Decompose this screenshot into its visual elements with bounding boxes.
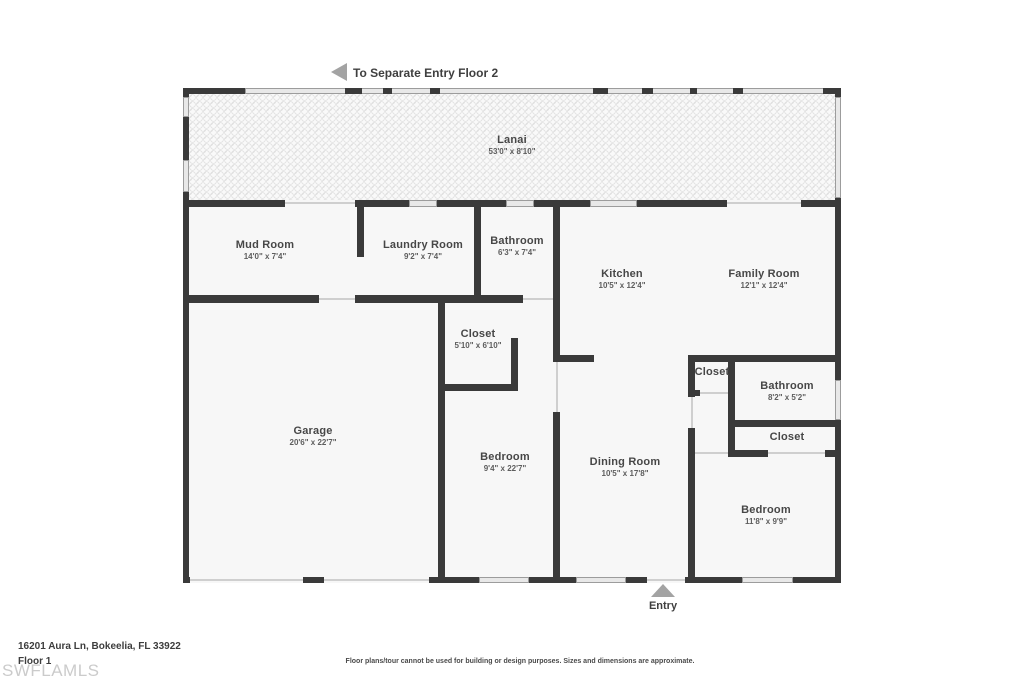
room-name: Lanai <box>489 134 536 147</box>
room-name: Dining Room <box>590 456 661 469</box>
room-label-bedroom-1: Bedroom 9'4" x 22'7" <box>480 451 530 474</box>
wall <box>688 428 695 583</box>
window <box>409 200 437 207</box>
wall <box>825 450 841 457</box>
room-name: Kitchen <box>599 268 646 281</box>
wall <box>688 390 700 396</box>
room-name: Laundry Room <box>383 239 463 252</box>
room-dims: 10'5" x 17'8" <box>590 469 661 479</box>
door-opening <box>727 202 801 204</box>
wall <box>534 200 590 207</box>
room-name: Bathroom <box>490 235 544 248</box>
room-dims: 10'5" x 12'4" <box>599 281 646 291</box>
wall <box>438 295 445 583</box>
room-dims: 9'2" x 7'4" <box>383 252 463 262</box>
wall <box>688 355 841 362</box>
room-label-bedroom-2: Bedroom 11'8" x 9'9" <box>741 504 791 527</box>
room-name: Closet <box>695 366 730 379</box>
window <box>835 380 841 420</box>
wall <box>690 88 697 94</box>
disclaimer-text: Floor plans/tour cannot be used for buil… <box>346 658 695 665</box>
wall <box>529 577 576 583</box>
wall <box>303 577 324 583</box>
door-opening <box>700 392 728 394</box>
room-name: Bedroom <box>480 451 530 464</box>
room-label-bathroom-2: Bathroom 8'2" x 5'2" <box>760 380 814 403</box>
window <box>183 160 189 192</box>
room-name: Closet <box>770 431 805 444</box>
wall <box>183 88 245 94</box>
room-label-bathroom-1: Bathroom 6'3" x 7'4" <box>490 235 544 258</box>
wall <box>438 384 518 391</box>
garage-door-opening <box>324 579 429 581</box>
room-label-closet-3: Closet <box>770 431 805 444</box>
wall <box>383 88 392 94</box>
room-name: Mud Room <box>236 239 294 252</box>
room-dims: 14'0" x 7'4" <box>236 252 294 262</box>
room-name: Family Room <box>728 268 799 281</box>
room-label-laundry-room: Laundry Room 9'2" x 7'4" <box>383 239 463 262</box>
window <box>183 97 189 117</box>
room-label-lanai: Lanai 53'0" x 8'10" <box>489 134 536 157</box>
wall <box>593 88 608 94</box>
window <box>506 200 534 207</box>
wall <box>183 577 190 583</box>
room-label-mud-room: Mud Room 14'0" x 7'4" <box>236 239 294 262</box>
room-name: Bathroom <box>760 380 814 393</box>
door-opening <box>691 397 693 428</box>
door-opening <box>556 361 558 412</box>
room-dims: 53'0" x 8'10" <box>489 147 536 157</box>
room-dims: 11'8" x 9'9" <box>741 517 791 527</box>
window <box>835 97 841 198</box>
wall <box>801 200 841 207</box>
wall <box>733 88 743 94</box>
room-label-closet-2: Closet <box>695 366 730 379</box>
separate-entry-label: To Separate Entry Floor 2 <box>353 66 498 80</box>
wall <box>637 200 727 207</box>
room-label-kitchen: Kitchen 10'5" x 12'4" <box>599 268 646 291</box>
window <box>742 577 793 583</box>
room-name: Bedroom <box>741 504 791 517</box>
room-name: Closet <box>455 328 502 341</box>
wall <box>793 577 841 583</box>
room-dims: 20'6" x 22'7" <box>290 438 337 448</box>
door-opening <box>695 452 728 454</box>
door-opening <box>768 452 825 454</box>
floor-plan-canvas: Lanai 53'0" x 8'10" Mud Room 14'0" x 7'4… <box>0 0 1024 682</box>
room-dims: 9'4" x 22'7" <box>480 464 530 474</box>
entry-arrow-icon <box>651 584 675 597</box>
window <box>576 577 626 583</box>
wall <box>437 200 506 207</box>
room-label-family-room: Family Room 12'1" x 12'4" <box>728 268 799 291</box>
wall <box>357 203 364 257</box>
wall <box>345 88 362 94</box>
entry-door-opening <box>647 579 685 581</box>
wall <box>626 577 647 583</box>
window <box>590 200 637 207</box>
window <box>479 577 529 583</box>
room-dims: 5'10" x 6'10" <box>455 341 502 351</box>
wall <box>430 88 440 94</box>
room-dims: 6'3" x 7'4" <box>490 248 544 258</box>
wall <box>474 203 481 303</box>
window <box>245 88 841 94</box>
door-opening <box>285 202 355 204</box>
room-dims: 12'1" x 12'4" <box>728 281 799 291</box>
door-opening <box>319 298 355 300</box>
door-opening <box>523 298 553 300</box>
wall <box>553 203 560 361</box>
wall <box>183 295 319 303</box>
room-label-closet-1: Closet 5'10" x 6'10" <box>455 328 502 351</box>
wall <box>553 355 594 362</box>
wall <box>728 420 841 427</box>
room-name: Garage <box>290 425 337 438</box>
wall <box>553 412 560 577</box>
room-label-dining-room: Dining Room 10'5" x 17'8" <box>590 456 661 479</box>
wall <box>728 450 768 457</box>
room-dims: 8'2" x 5'2" <box>760 393 814 403</box>
floor-number-label: Floor 1 <box>18 656 51 667</box>
garage-door-opening <box>190 579 303 581</box>
property-address: 16201 Aura Ln, Bokeelia, FL 33922 <box>18 641 181 652</box>
wall <box>642 88 653 94</box>
wall <box>429 577 479 583</box>
wall <box>183 200 285 207</box>
room-label-garage: Garage 20'6" x 22'7" <box>290 425 337 448</box>
entry-label: Entry <box>649 600 677 612</box>
separate-entry-arrow-icon <box>331 63 347 81</box>
